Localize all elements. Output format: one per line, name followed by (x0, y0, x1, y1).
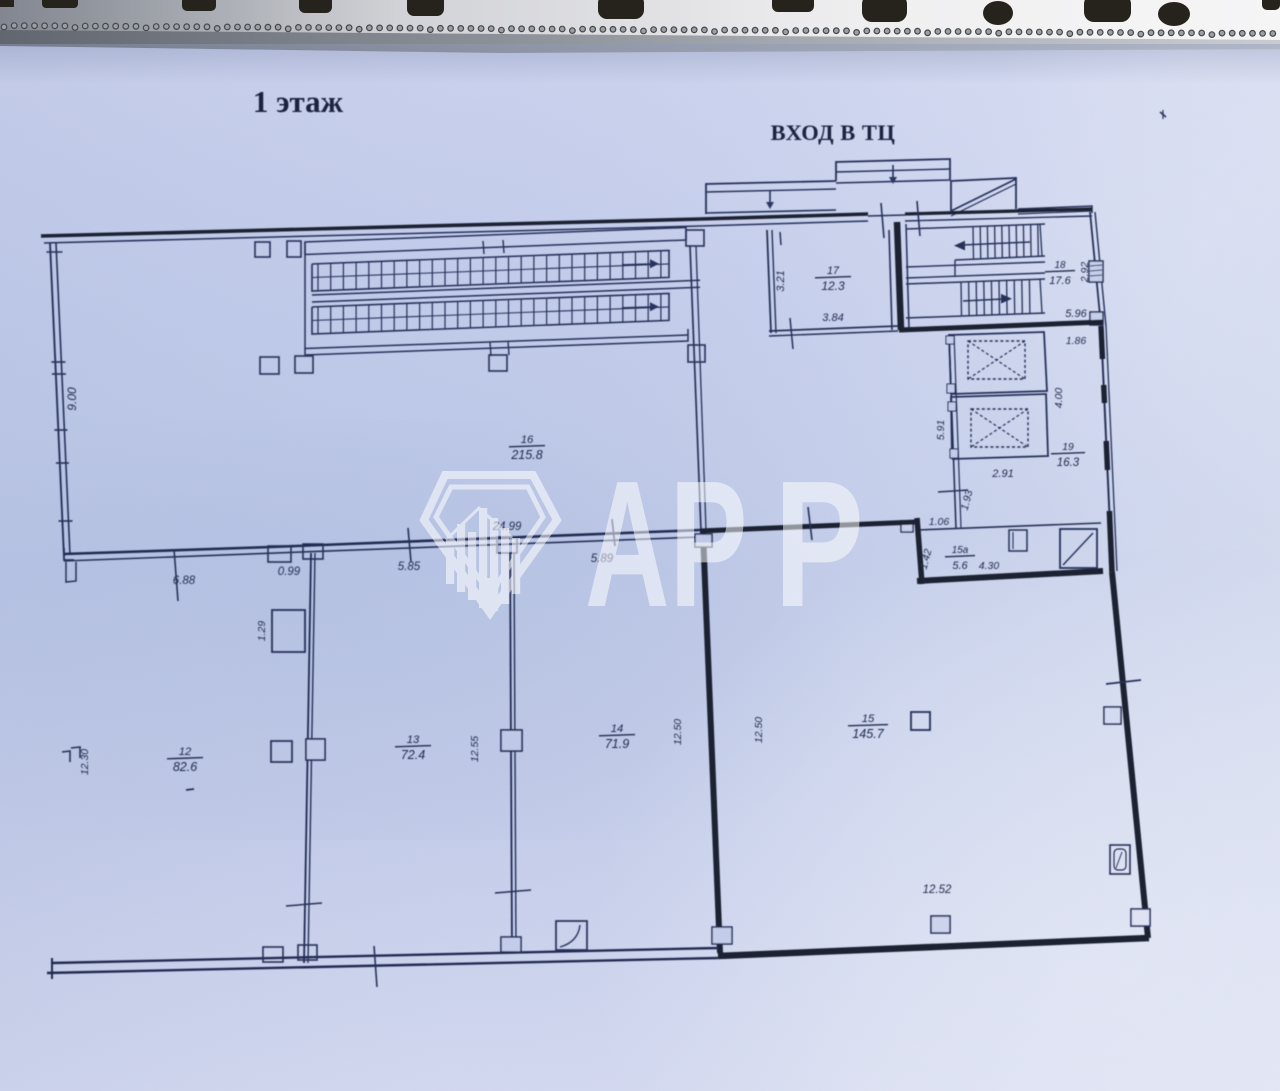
svg-text:4.30: 4.30 (979, 560, 1000, 572)
svg-text:12.3: 12.3 (821, 279, 845, 293)
svg-text:5.91: 5.91 (935, 420, 947, 440)
svg-text:18: 18 (1055, 260, 1066, 271)
svg-text:145.7: 145.7 (852, 727, 884, 741)
svg-text:16.3: 16.3 (1057, 457, 1080, 469)
svg-text:0.99: 0.99 (278, 566, 301, 578)
svg-text:4.00: 4.00 (1053, 388, 1065, 409)
svg-text:14: 14 (611, 723, 624, 735)
svg-text:15а: 15а (952, 545, 969, 556)
svg-text:71.9: 71.9 (605, 737, 629, 751)
svg-text:12.55: 12.55 (469, 736, 481, 762)
svg-text:215.8: 215.8 (510, 448, 542, 462)
svg-text:1.29: 1.29 (256, 621, 268, 642)
svg-text:12.50: 12.50 (672, 719, 684, 745)
svg-text:1 этаж: 1 этаж (253, 84, 344, 119)
svg-text:1.06: 1.06 (929, 516, 950, 528)
svg-text:ВХОД В ТЦ: ВХОД В ТЦ (771, 120, 896, 145)
svg-text:6.88: 6.88 (173, 575, 196, 587)
svg-text:5.85: 5.85 (398, 561, 421, 573)
svg-text:17.6: 17.6 (1049, 275, 1071, 287)
svg-text:72.4: 72.4 (401, 748, 425, 762)
svg-text:3.21: 3.21 (775, 270, 787, 291)
svg-text:2.91: 2.91 (991, 468, 1013, 480)
svg-text:12.52: 12.52 (923, 884, 952, 896)
svg-text:82.6: 82.6 (173, 760, 197, 774)
svg-text:3.84: 3.84 (822, 312, 843, 324)
svg-text:5.6: 5.6 (952, 560, 968, 572)
svg-text:12.50: 12.50 (753, 717, 765, 743)
svg-text:17: 17 (827, 265, 840, 277)
svg-text:13: 13 (407, 734, 420, 746)
svg-text:15: 15 (862, 713, 875, 725)
svg-text:Р: Р (774, 443, 864, 644)
svg-text:12: 12 (179, 746, 192, 758)
svg-text:1.86: 1.86 (1066, 335, 1087, 347)
svg-text:9.00: 9.00 (65, 387, 79, 411)
svg-text:5.96: 5.96 (1065, 308, 1087, 320)
svg-text:А: А (585, 445, 669, 645)
svg-text:16: 16 (521, 434, 534, 446)
svg-text:19: 19 (1062, 442, 1074, 453)
svg-text:Р: Р (670, 445, 748, 645)
